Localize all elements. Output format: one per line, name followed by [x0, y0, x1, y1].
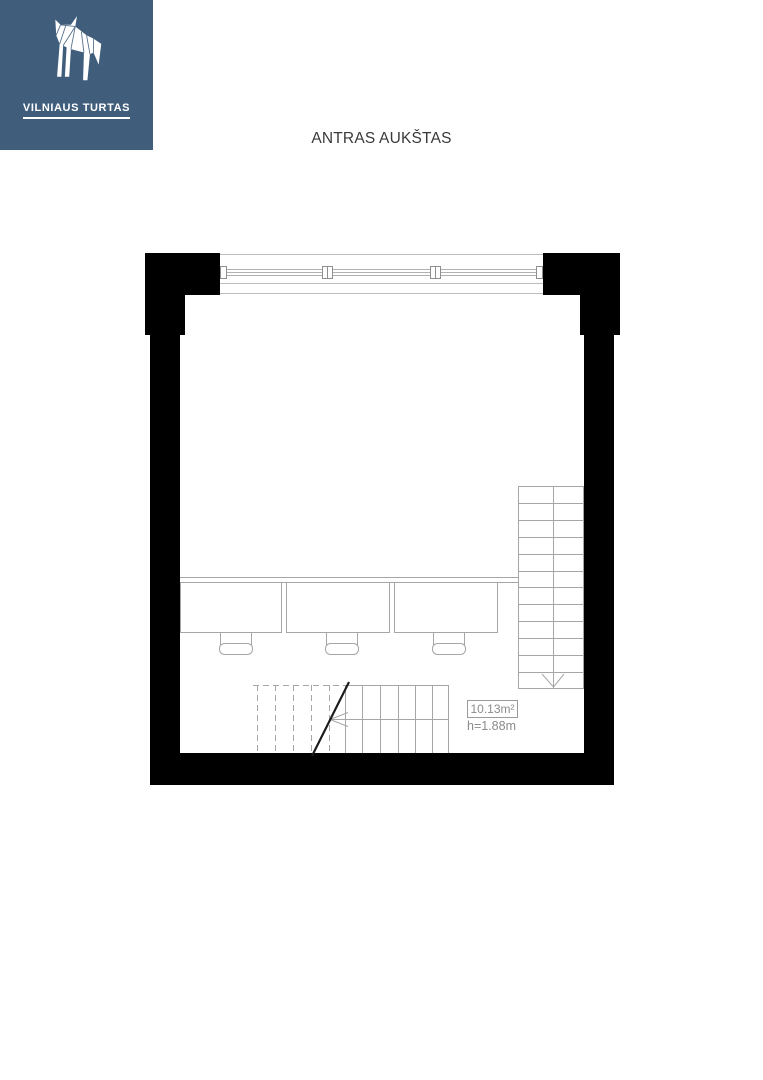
walk-line — [330, 713, 448, 727]
staircase-right — [518, 487, 584, 689]
wall-face-lines — [185, 255, 580, 294]
desk-1 — [181, 583, 282, 633]
window-mullion-1 — [323, 267, 328, 279]
window-end-cap-left — [221, 267, 227, 279]
staircase-bottom — [253, 682, 449, 756]
desk-3 — [395, 583, 498, 633]
counter-line — [180, 578, 518, 583]
walls — [145, 253, 620, 785]
room-area-value: 10.13m² — [470, 702, 514, 716]
wall-bottom — [150, 753, 614, 785]
wall-left — [150, 330, 180, 785]
room-area-label: 10.13m² — [467, 700, 518, 718]
chair-1 — [220, 633, 253, 655]
window-strip — [221, 267, 543, 279]
window-end-cap-right — [537, 267, 543, 279]
wall-right — [584, 330, 614, 785]
window-mullion-2 — [431, 267, 436, 279]
chair-3 — [433, 633, 466, 655]
room-height-label: h=1.88m — [467, 719, 521, 733]
chair-2 — [326, 633, 359, 655]
desk-2 — [287, 583, 390, 633]
chairs — [220, 633, 466, 655]
floor-plan-drawing — [0, 0, 763, 1080]
desks — [181, 583, 498, 633]
